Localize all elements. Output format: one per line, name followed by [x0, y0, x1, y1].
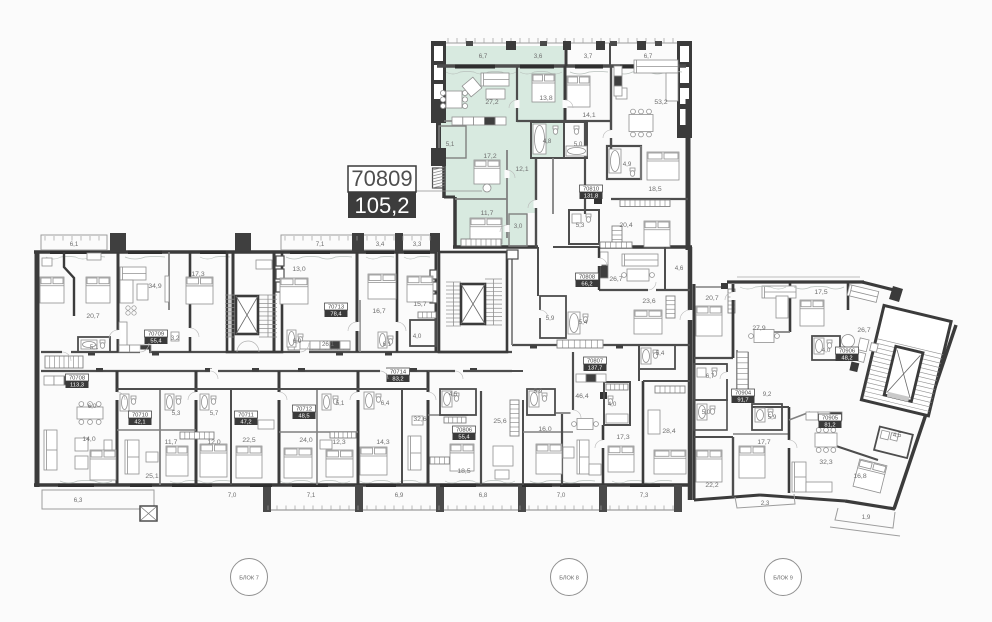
svg-text:4,9: 4,9 [623, 161, 632, 168]
svg-text:3,3: 3,3 [413, 241, 422, 248]
svg-text:14,3: 14,3 [376, 439, 389, 446]
svg-text:70709: 70709 [148, 332, 164, 338]
svg-text:70905: 70905 [822, 416, 838, 422]
svg-text:16,0: 16,0 [538, 426, 551, 433]
svg-text:83,2: 83,2 [392, 377, 403, 383]
svg-text:70708: 70708 [69, 376, 85, 382]
svg-text:70712: 70712 [296, 407, 312, 413]
svg-text:5,1: 5,1 [336, 400, 345, 407]
svg-text:6,1: 6,1 [383, 341, 392, 348]
svg-text:70807: 70807 [587, 359, 603, 365]
svg-text:5,9: 5,9 [546, 315, 555, 322]
svg-text:БЛОК 8: БЛОК 8 [559, 576, 579, 582]
svg-text:18,5: 18,5 [648, 186, 661, 193]
svg-text:70711: 70711 [238, 413, 254, 419]
svg-text:2,3: 2,3 [761, 500, 770, 507]
svg-text:70710: 70710 [132, 413, 148, 419]
svg-text:70808: 70808 [579, 275, 595, 281]
svg-text:34,9: 34,9 [148, 283, 161, 290]
svg-text:6,7: 6,7 [479, 53, 488, 60]
svg-text:70713: 70713 [328, 305, 344, 311]
svg-text:16,7: 16,7 [372, 308, 385, 315]
svg-text:3,7: 3,7 [584, 53, 593, 60]
svg-text:47,2: 47,2 [240, 420, 251, 426]
svg-text:22,5: 22,5 [242, 437, 255, 444]
svg-text:78,4: 78,4 [330, 312, 342, 318]
svg-text:17,3: 17,3 [191, 271, 204, 278]
svg-text:137,7: 137,7 [588, 366, 603, 372]
svg-text:27,9: 27,9 [752, 325, 765, 332]
svg-text:26,7: 26,7 [609, 276, 622, 283]
svg-text:3,6: 3,6 [534, 53, 543, 60]
svg-text:БЛОК 9: БЛОК 9 [773, 576, 793, 582]
svg-text:5,4: 5,4 [656, 350, 665, 357]
svg-text:105,2: 105,2 [354, 193, 409, 218]
svg-text:5,3: 5,3 [172, 410, 181, 417]
svg-text:6,7: 6,7 [706, 373, 715, 380]
svg-text:91,7: 91,7 [737, 398, 748, 404]
svg-text:6,3: 6,3 [74, 497, 83, 504]
svg-text:5,7: 5,7 [210, 410, 219, 417]
svg-text:13,0: 13,0 [292, 266, 305, 273]
svg-text:6,8: 6,8 [479, 492, 488, 499]
svg-text:11,7: 11,7 [481, 210, 494, 217]
svg-text:55,4: 55,4 [458, 435, 470, 441]
svg-text:12,1: 12,1 [515, 166, 528, 173]
svg-text:70714: 70714 [390, 370, 407, 376]
svg-text:70806: 70806 [456, 428, 472, 434]
svg-text:4,0: 4,0 [822, 347, 831, 354]
svg-text:14,0: 14,0 [82, 436, 95, 443]
svg-text:6,7: 6,7 [644, 53, 653, 60]
svg-text:7,0: 7,0 [557, 492, 566, 499]
svg-text:4,5: 4,5 [449, 391, 458, 398]
svg-text:15,7: 15,7 [413, 301, 426, 308]
svg-text:12,3: 12,3 [332, 439, 345, 446]
svg-text:17,5: 17,5 [814, 289, 827, 296]
svg-text:17,3: 17,3 [616, 434, 629, 441]
svg-text:7,3: 7,3 [640, 492, 649, 499]
svg-text:20,7: 20,7 [86, 313, 99, 320]
svg-text:6,1: 6,1 [70, 241, 79, 248]
svg-text:7,1: 7,1 [307, 492, 316, 499]
svg-text:4,8: 4,8 [543, 138, 552, 145]
svg-text:5,9: 5,9 [534, 388, 543, 395]
svg-text:23,6: 23,6 [642, 298, 655, 305]
svg-text:20,7: 20,7 [705, 295, 718, 302]
svg-text:6,9: 6,9 [395, 492, 404, 499]
svg-text:12,0: 12,0 [207, 439, 220, 446]
svg-text:48,5: 48,5 [298, 414, 309, 420]
svg-text:13,8: 13,8 [539, 95, 552, 102]
svg-text:18,5: 18,5 [457, 468, 470, 475]
svg-text:70809: 70809 [351, 166, 412, 191]
svg-text:5,4: 5,4 [579, 319, 588, 326]
svg-text:22,2: 22,2 [705, 482, 718, 489]
svg-text:28,4: 28,4 [662, 428, 675, 435]
svg-text:7,1: 7,1 [316, 241, 325, 248]
svg-text:70810: 70810 [583, 187, 599, 193]
svg-text:6,0: 6,0 [293, 338, 302, 345]
svg-text:5,3: 5,3 [576, 222, 585, 229]
svg-text:26,1: 26,1 [322, 341, 335, 348]
svg-text:27,2: 27,2 [485, 99, 498, 106]
svg-text:5,0: 5,0 [702, 409, 711, 416]
svg-text:4,5: 4,5 [893, 432, 902, 439]
svg-text:131,8: 131,8 [584, 194, 599, 200]
svg-text:3,0: 3,0 [514, 223, 523, 230]
svg-text:70906: 70906 [839, 349, 855, 355]
svg-text:53,2: 53,2 [654, 99, 667, 106]
svg-text:1,9: 1,9 [862, 514, 871, 521]
svg-text:БЛОК 7: БЛОК 7 [239, 576, 259, 582]
svg-text:6,0: 6,0 [88, 403, 97, 410]
svg-text:6,4: 6,4 [381, 400, 390, 407]
svg-text:5,1: 5,1 [90, 344, 99, 351]
svg-text:113,3: 113,3 [70, 383, 84, 389]
svg-text:4,0: 4,0 [413, 333, 422, 340]
svg-text:20,4: 20,4 [619, 222, 632, 229]
svg-text:5,0: 5,0 [574, 141, 583, 148]
svg-text:14,1: 14,1 [582, 112, 595, 119]
svg-text:5,1: 5,1 [446, 141, 455, 148]
svg-text:26,7: 26,7 [857, 327, 870, 334]
svg-text:55,4: 55,4 [150, 339, 162, 345]
svg-text:42,1: 42,1 [134, 420, 145, 426]
svg-text:66,2: 66,2 [581, 282, 592, 288]
svg-text:48,2: 48,2 [841, 356, 852, 362]
svg-text:46,4: 46,4 [575, 393, 588, 400]
svg-text:4,6: 4,6 [675, 265, 684, 272]
svg-text:24,0: 24,0 [299, 437, 312, 444]
svg-text:3,2: 3,2 [171, 335, 180, 342]
svg-text:3,4: 3,4 [376, 241, 385, 248]
svg-text:17,7: 17,7 [757, 439, 770, 446]
svg-text:9,2: 9,2 [763, 391, 772, 398]
svg-text:4,0: 4,0 [608, 401, 617, 408]
svg-text:17,2: 17,2 [483, 153, 496, 160]
svg-text:81,2: 81,2 [824, 423, 835, 429]
svg-text:5,9: 5,9 [768, 414, 777, 421]
svg-text:32,3: 32,3 [819, 459, 832, 466]
svg-text:70904: 70904 [735, 391, 752, 397]
svg-text:16,8: 16,8 [853, 473, 866, 480]
svg-text:7,0: 7,0 [228, 492, 237, 499]
svg-text:32,6: 32,6 [413, 416, 426, 423]
svg-text:25,1: 25,1 [145, 473, 158, 480]
svg-text:25,6: 25,6 [493, 418, 506, 425]
svg-text:11,7: 11,7 [165, 439, 178, 446]
